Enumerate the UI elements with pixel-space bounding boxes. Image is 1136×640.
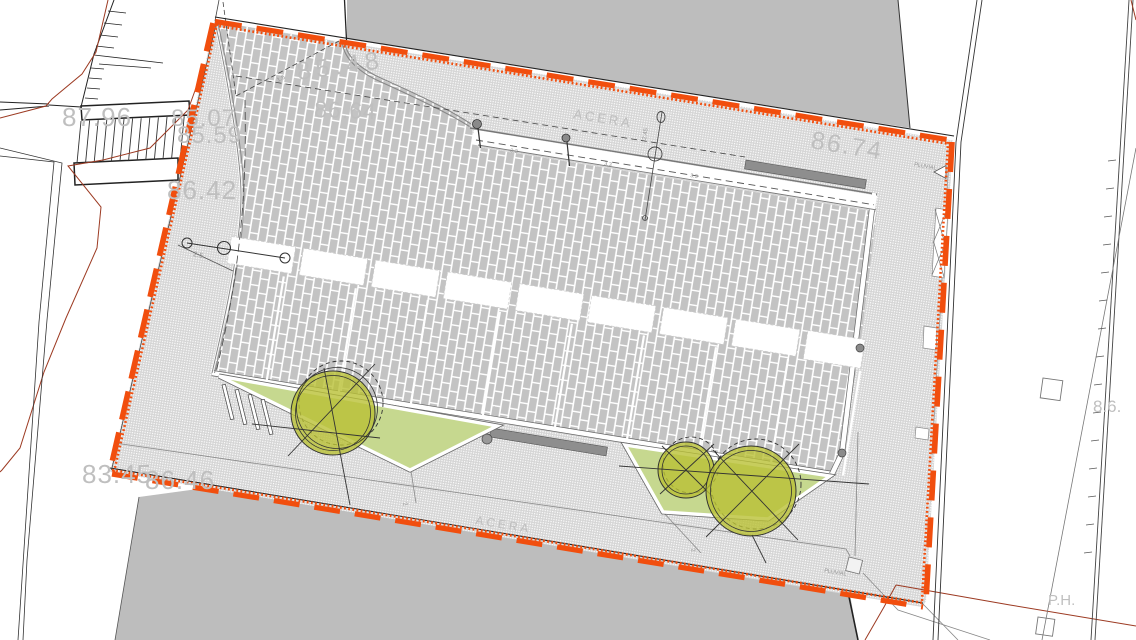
svg-text:85.59: 85.59 xyxy=(177,122,242,149)
svg-text:83.45: 83.45 xyxy=(82,459,152,489)
svg-text:3.3: 3.3 xyxy=(690,173,699,180)
svg-text:86.46: 86.46 xyxy=(145,465,215,495)
svg-text:86.64: 86.64 xyxy=(314,96,377,124)
svg-text:3.3: 3.3 xyxy=(604,161,613,168)
svg-text:P.H.: P.H. xyxy=(1048,592,1075,609)
svg-text:86.42: 86.42 xyxy=(167,175,237,205)
svg-text:3.3: 3.3 xyxy=(510,148,519,155)
svg-text:87.96: 87.96 xyxy=(62,102,132,132)
svg-text:8.6.: 8.6. xyxy=(1093,397,1121,416)
